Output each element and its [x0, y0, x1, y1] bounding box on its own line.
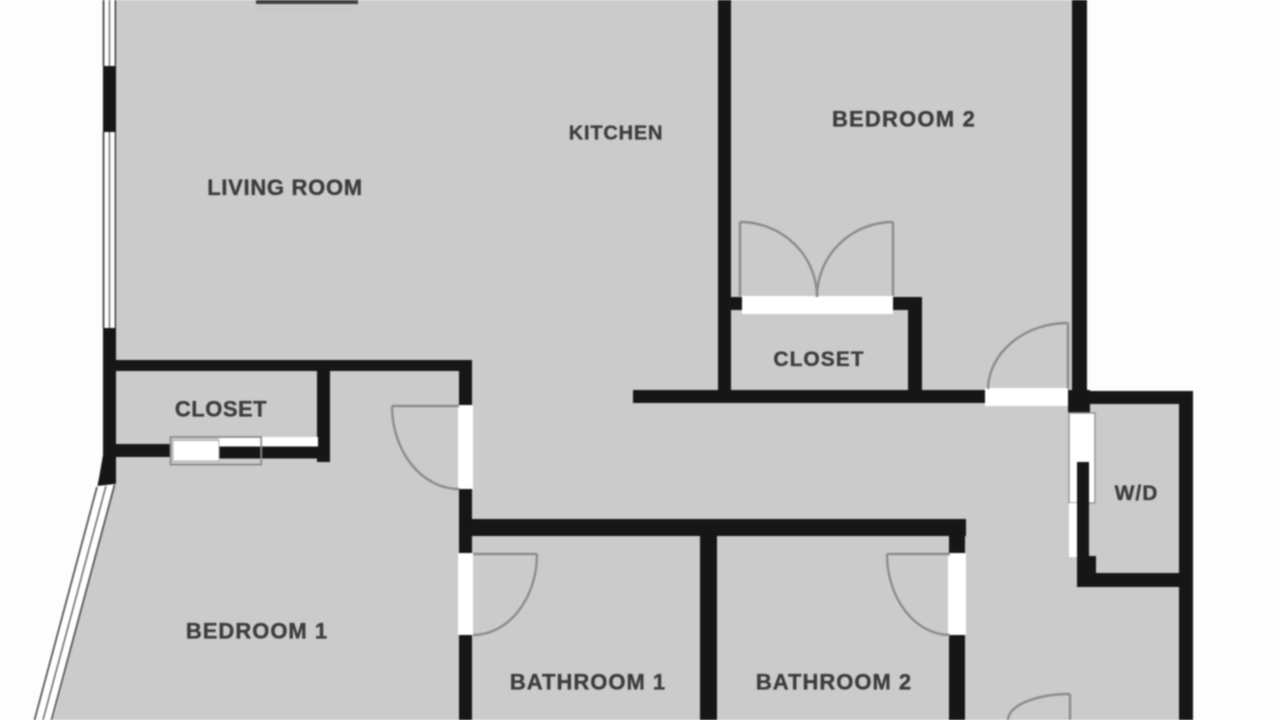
svg-text:KITCHEN: KITCHEN — [569, 122, 664, 144]
svg-text:BEDROOM 2: BEDROOM 2 — [832, 107, 976, 132]
svg-text:BATHROOM 2: BATHROOM 2 — [756, 669, 912, 694]
svg-text:W/D: W/D — [1115, 482, 1159, 505]
svg-text:BEDROOM 1: BEDROOM 1 — [186, 618, 328, 643]
svg-text:LIVING ROOM: LIVING ROOM — [207, 175, 363, 200]
svg-text:BATHROOM 1: BATHROOM 1 — [510, 669, 666, 694]
svg-text:CLOSET: CLOSET — [773, 348, 864, 371]
svg-text:CLOSET: CLOSET — [175, 397, 267, 422]
